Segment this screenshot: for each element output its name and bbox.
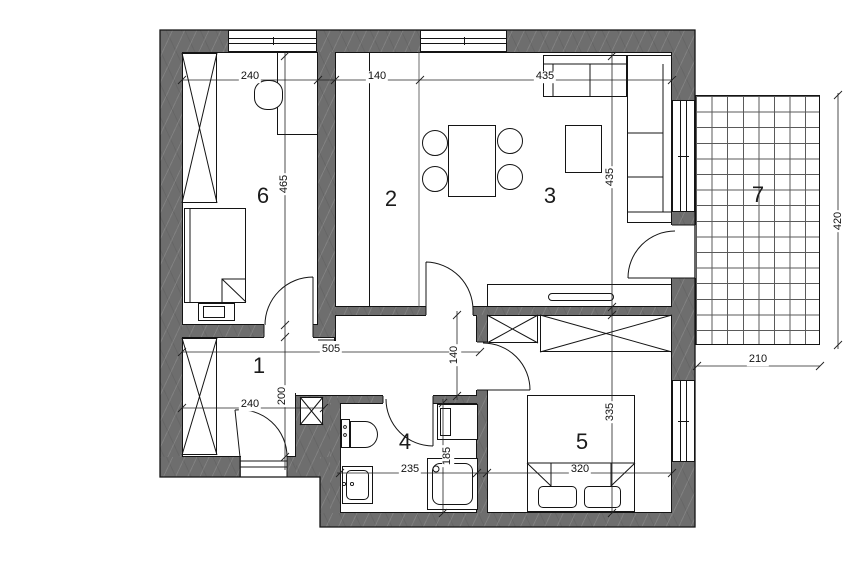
wardrobe [540,315,672,352]
wall-right-seg2 [672,212,695,225]
sink-basin [346,470,369,500]
hall-merge-patch [292,338,298,393]
floor-plan: 1 2 3 4 5 6 7 240 140 435 465 200 435 33… [0,0,867,578]
nightstand-inner [203,306,225,318]
door-opening-entrance [241,456,287,478]
dim-terrace-height: 420 [833,210,845,232]
wall-bedroom1-hall-b [313,325,318,337]
room-label-bathroom: 4 [399,431,411,453]
dim-terrace-width: 210 [747,354,769,366]
dining-table [448,125,496,197]
armchair-side-table [565,125,602,173]
toilet-bowl [350,421,378,448]
door-opening-terrace [668,225,696,278]
wall-bath-top-b [433,396,477,403]
dim-living-height: 435 [605,166,617,188]
dim-corridor-height: 140 [449,344,461,366]
shower-tray [432,463,473,505]
window-bedroom2 [672,380,695,462]
room-label-terrace: 7 [752,184,764,206]
sofa-right-section [627,55,672,223]
room-label-bedroom1: 6 [257,185,269,207]
single-bed [184,208,246,303]
window-kitchen-living [420,30,507,52]
window-mullion [678,421,688,422]
dim-hall-width: 505 [320,344,342,356]
dim-bedroom2-width: 320 [569,464,591,476]
pillow [584,486,621,508]
window-mullion [678,156,688,157]
wall-bedroom2-left-b [477,390,487,513]
wall-right-seg3 [672,278,695,380]
dim-kitchen-width: 140 [366,71,388,83]
wall-hall-living-a [335,307,426,315]
toilet-tank [341,419,350,448]
desk [277,52,318,135]
dim-bathroom-width: 235 [399,464,421,476]
duct-shaft [300,397,323,425]
wall-bedroom2-left-a [477,315,487,342]
dim-living-width: 435 [534,71,556,83]
kitchen-counter [335,52,370,307]
pillow [538,486,577,508]
door-opening-bedroom2 [476,342,489,390]
dim-bedroom2-height: 335 [605,401,617,423]
room-label-bedroom2: 5 [576,431,588,453]
terrace-tiles [695,95,820,345]
wall-bottom [320,513,695,527]
dim-hall-height: 200 [277,385,289,407]
wall-bath-left [330,403,340,513]
wardrobe [487,315,538,343]
window-bedroom1 [228,30,317,52]
wall-left [160,30,182,477]
dining-chair [422,130,448,156]
desk-chair [254,80,283,110]
wall-bedroom1-kitchen [318,52,335,340]
wall-living-bedroom2 [473,307,672,315]
room-label-hall: 1 [253,355,265,377]
window-mullion [464,37,465,46]
dining-chair [422,166,448,192]
dim-bathroom-height: 185 [442,445,454,467]
room-label-living: 3 [544,185,556,207]
wall-bath-top-a [337,396,383,403]
dim-bedroom1-width: 240 [239,71,261,83]
wall-right-seg4 [672,462,695,527]
dining-chair [497,128,523,154]
dim-bedroom1-height: 465 [279,173,291,195]
wardrobe [182,338,217,455]
dining-chair [497,164,523,190]
wall-right-seg1 [672,30,695,100]
window-mullion [273,37,274,46]
tv [548,293,614,301]
wardrobe [182,53,217,203]
room-label-kitchen: 2 [385,188,397,210]
window-living [672,100,695,212]
dim-hall-entry-width: 240 [239,399,261,411]
door-opening-living [426,306,473,317]
washing-machine-inner [440,408,451,436]
wall-bedroom1-hall-a [182,325,264,337]
door-opening-bedroom1 [264,324,313,339]
door-opening-bathroom [383,395,433,405]
